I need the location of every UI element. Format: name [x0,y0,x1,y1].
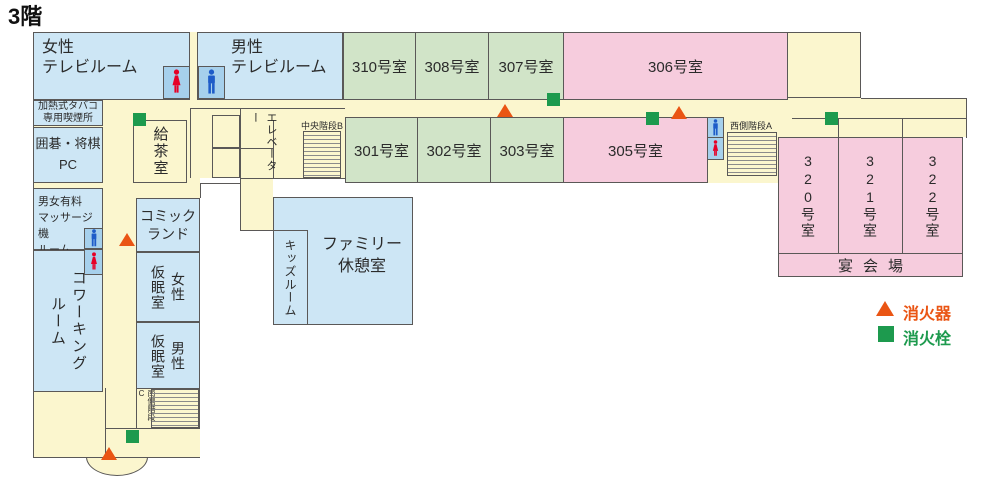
strip-div-2 [902,118,903,137]
room-igo-shogi: 囲碁・将棋 PC [33,127,103,183]
room-comic-label: コミック ランド [140,207,196,243]
room-307-label: 307号室 [498,56,553,77]
room-smoking-label: 加熱式タバコ 専用喫煙所 [38,101,98,125]
fire-extinguisher-marker [119,233,135,246]
room-301-label: 301号室 [354,140,409,161]
room-308-label: 308号室 [424,56,479,77]
central-stairs [303,131,341,178]
fire-extinguisher-marker [671,106,687,119]
extinguisher-legend-icon [876,301,894,316]
room-307: 307号室 [488,32,564,100]
room-tv-men-label: 男性 テレビルーム [231,38,327,78]
male-icon [89,229,99,248]
strip-line [792,118,967,119]
room-308: 308号室 [415,32,489,100]
room-nap-women-label: 女性 仮眠室 [148,265,188,310]
notch-left-line [200,183,201,198]
elevator-shaft-2 [212,148,240,178]
room-320-label: 320号室 [798,153,818,239]
room-321-label: 321号室 [860,153,880,239]
lobby-left-line [190,108,191,178]
room-322-label: 322号室 [923,153,943,239]
room-tv-women-label: 女性 テレビルーム [42,38,138,78]
room-301: 301号室 [345,117,418,183]
hydrant-legend-label: 消火栓 [903,325,951,349]
room-nap-women: 女性 仮眠室 [136,252,200,322]
male-icon [205,69,218,96]
massage-toilet-women-box [84,249,103,275]
fire-extinguisher-marker [101,447,117,460]
room-tea-label: 給茶室 [150,126,171,177]
west-stairs [727,132,777,176]
south-stairs-label-wrap: 南側階段C [137,389,149,428]
south-entrance-bump [86,458,150,477]
tv-men-toilet-box [198,66,225,99]
room-306: 306号室 [563,32,788,100]
banquet-hall-label: 宴会場 [828,255,913,276]
lobby-top-line [190,108,345,109]
fire-hydrant-marker [646,112,659,125]
top-step-block [787,32,861,98]
connector-left-line [240,109,241,230]
female-icon [711,140,720,158]
room-305: 305号室 [563,117,708,183]
room-kids-label: キッズルーム [282,239,299,317]
room-305-label: 305号室 [608,140,663,161]
female-icon [89,252,99,272]
room-smoking: 加熱式タバコ 専用喫煙所 [33,100,103,126]
room-322: 322号室 [902,140,963,252]
elevator-shaft-1 [212,115,240,148]
west-stairs-label: 西側階段A [730,121,772,132]
female-icon [170,69,183,96]
page-title: 3階 [8,3,42,31]
room-320: 320号室 [778,140,838,252]
south-stairs [151,389,199,428]
room-coworking-label: コワーキング ルーム [47,270,89,372]
room-tea: 給茶室 [133,120,187,183]
strip-div-1 [838,118,839,137]
elevator-label: エレベーター [247,112,279,182]
fire-hydrant-marker [825,112,838,125]
banquet-hall: 宴会場 [778,253,963,277]
room-nap-men: 男性 仮眠室 [136,322,200,390]
hydrant-legend-icon [878,326,894,342]
room-igo-shogi-label: 囲碁・将棋 PC [35,134,100,176]
fire-extinguisher-marker [497,104,513,117]
outline-top-right [861,98,967,99]
tv-women-toilet-box [163,66,190,99]
notch-top-line [200,183,240,184]
room-306-label: 306号室 [648,56,703,77]
floor-plan: 3階 女性 テレビルーム 男性 テレビルーム [0,0,1000,477]
elevator-label-wrap: エレベーター [247,112,263,182]
room-321: 321号室 [838,140,902,252]
room-302: 302号室 [417,117,491,183]
fire-hydrant-marker [126,430,139,443]
room-310: 310号室 [343,32,416,100]
room-nap-men-label: 男性 仮眠室 [148,334,188,379]
room-303-label: 303号室 [499,140,554,161]
room-302-label: 302号室 [426,140,481,161]
room-kids: キッズルーム [273,230,308,325]
fire-hydrant-marker [547,93,560,106]
massage-toilet-men-box [84,228,103,249]
room-303: 303号室 [490,117,564,183]
extinguisher-legend-label: 消火器 [903,300,951,324]
room-family-label: ファミリー 休憩室 [314,234,410,279]
room-310-label: 310号室 [352,56,407,77]
connector-bottom-line [240,230,274,231]
room-comic: コミック ランド [136,198,200,252]
west-toilet-men-box [707,117,724,138]
west-toilet-women-box [707,137,724,160]
fire-hydrant-marker [133,113,146,126]
male-icon [711,119,720,137]
corridor-connector [240,178,273,230]
